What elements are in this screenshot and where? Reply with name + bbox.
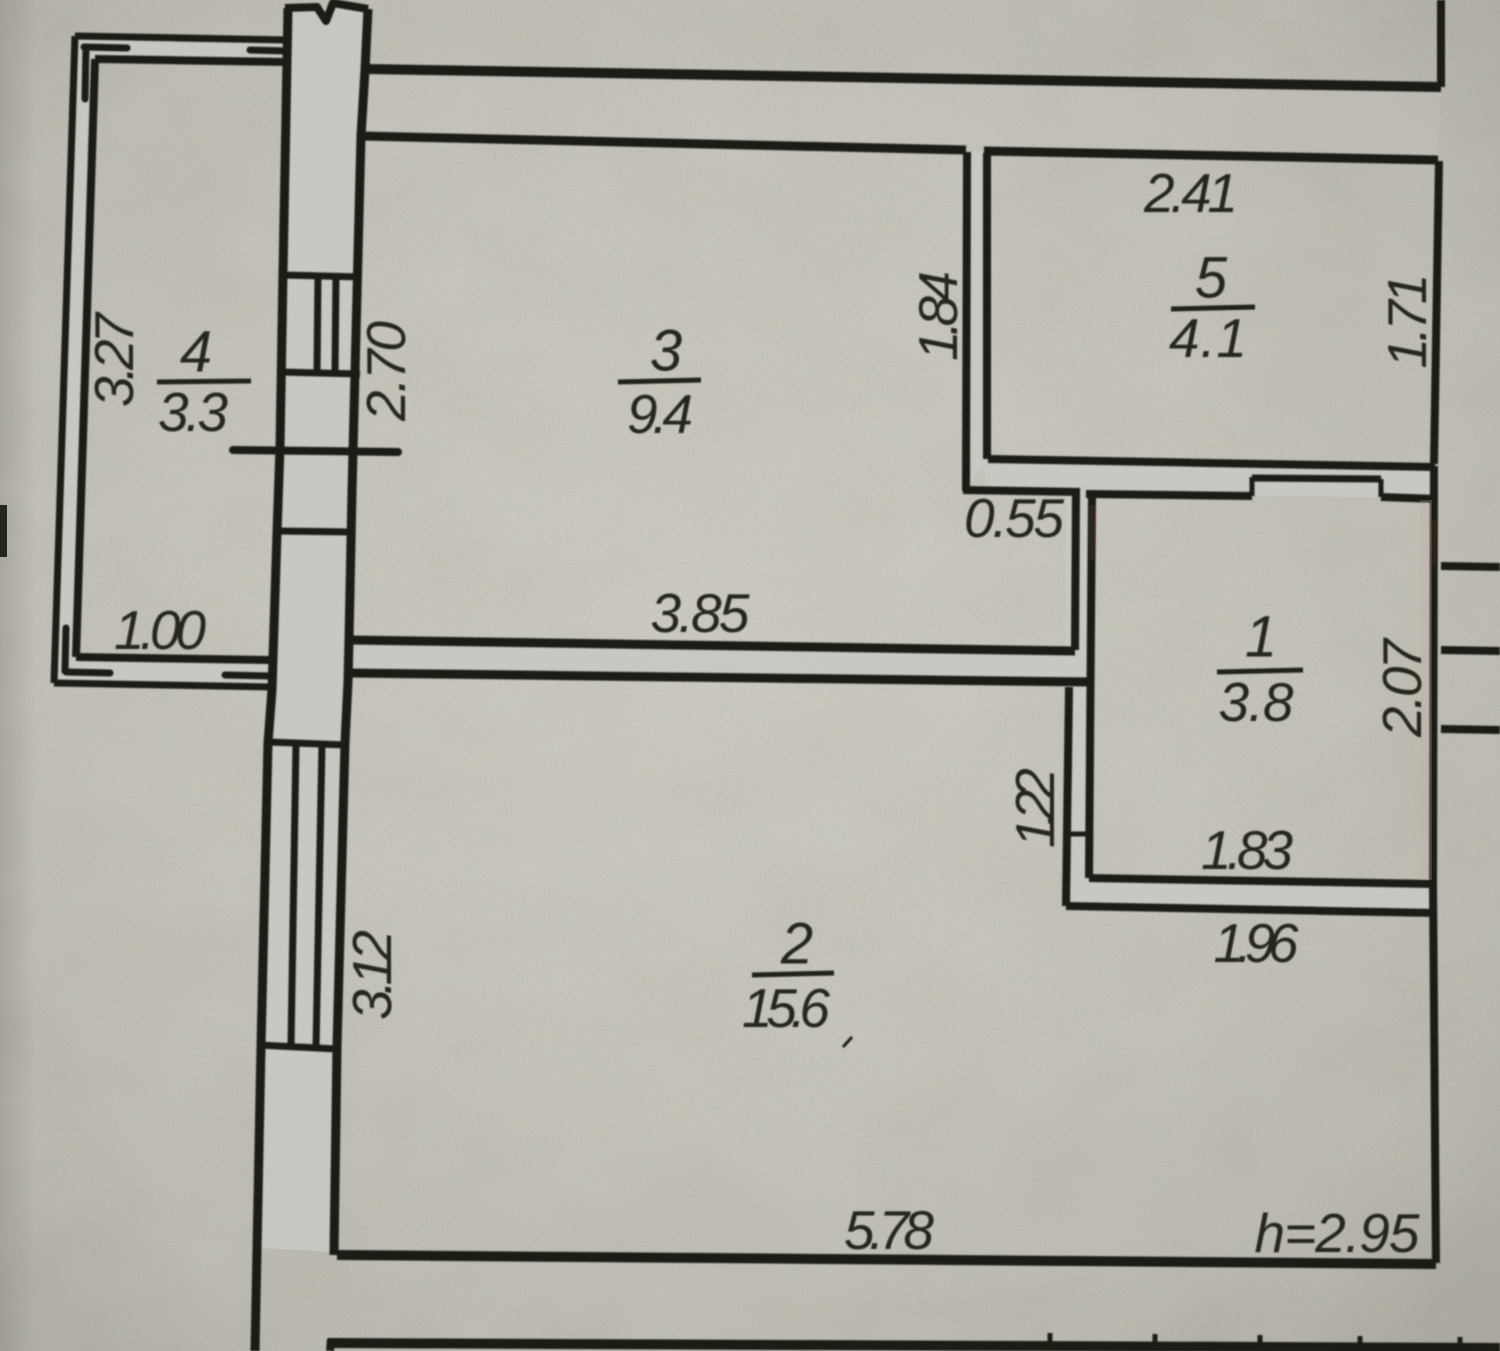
svg-text:1.84: 1.84: [907, 271, 969, 361]
svg-text:2.07: 2.07: [1371, 637, 1433, 738]
svg-text:1.71: 1.71: [1376, 274, 1438, 369]
svg-text:3.85: 3.85: [651, 582, 750, 644]
svg-text:2: 2: [780, 912, 813, 977]
svg-text:0.55: 0.55: [964, 487, 1064, 549]
svg-text:15.6: 15.6: [742, 977, 830, 1039]
svg-text:1: 1: [1245, 605, 1277, 670]
svg-text:h=2.95: h=2.95: [1255, 1202, 1420, 1264]
svg-text:1.00: 1.00: [114, 599, 206, 661]
svg-text:5.78: 5.78: [844, 1199, 934, 1261]
svg-text:3: 3: [650, 319, 682, 384]
svg-text:1.83: 1.83: [1201, 819, 1293, 881]
svg-text:1.96: 1.96: [1214, 912, 1299, 974]
svg-text:3.12: 3.12: [341, 930, 403, 1020]
svg-text:3.27: 3.27: [83, 311, 145, 407]
svg-text:1.22: 1.22: [1004, 768, 1066, 848]
svg-text:4.1: 4.1: [1169, 307, 1247, 369]
svg-text:4: 4: [180, 320, 212, 385]
svg-text:3.3: 3.3: [158, 381, 228, 443]
svg-text:2.70: 2.70: [355, 321, 417, 422]
svg-text:5: 5: [1195, 246, 1228, 311]
svg-text:9.4: 9.4: [627, 383, 693, 445]
svg-text:2.41: 2.41: [1143, 162, 1238, 224]
svg-text:3.8: 3.8: [1219, 671, 1294, 733]
